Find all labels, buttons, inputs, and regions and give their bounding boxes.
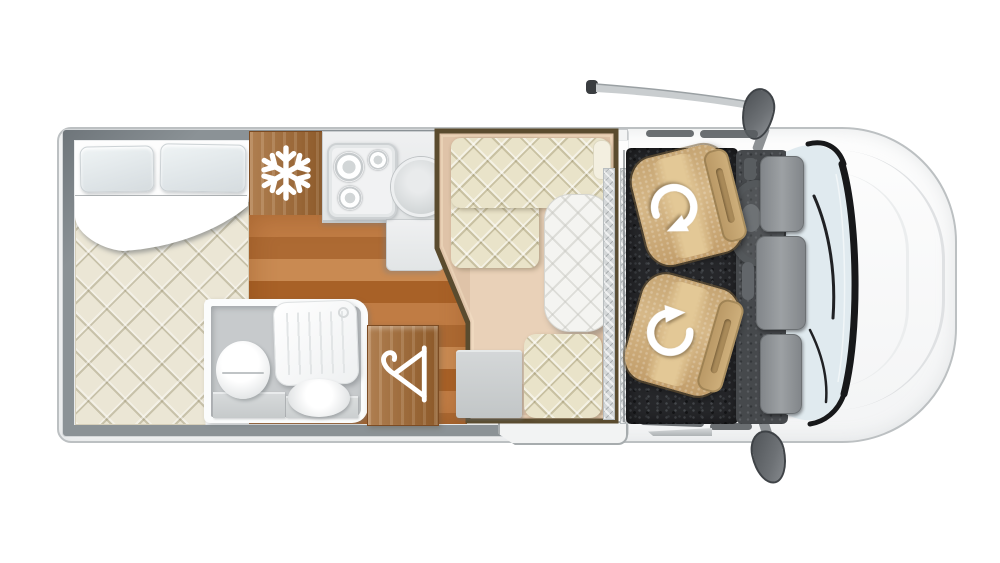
dinette-bench (456, 350, 522, 418)
swivel-arrow-icon (640, 303, 700, 363)
dinette-single-seat (524, 334, 602, 418)
snowflake-icon (257, 144, 315, 202)
washbasin (288, 379, 350, 417)
door-seam (710, 423, 752, 430)
roof-seam (646, 130, 694, 137)
pillow (80, 145, 155, 192)
hob-burner-medium (338, 186, 362, 210)
gear-lever (742, 262, 754, 300)
step-tread-inner (603, 168, 615, 420)
pillow (160, 143, 247, 192)
shower-drain (338, 307, 349, 318)
dinette-table (544, 194, 612, 332)
dash-vent (744, 158, 756, 180)
console-lower (760, 334, 802, 414)
console-engine (756, 236, 806, 330)
mirror-glass (747, 427, 791, 487)
console-upper (760, 156, 804, 232)
backrest-slot (715, 167, 736, 224)
hanger-icon (374, 338, 432, 410)
toilet (216, 341, 270, 399)
bed-sheet-fold (73, 194, 251, 260)
shower-ridges (286, 311, 346, 375)
cab-bulkhead-line (623, 150, 625, 422)
roof-seam (700, 130, 758, 138)
motorhome-floorplan (0, 0, 1000, 563)
hob-burner-large (334, 152, 364, 182)
shower-tray (273, 300, 360, 387)
mirror-top (740, 88, 784, 152)
toilet-seam (222, 372, 264, 374)
hob-burner-small (368, 150, 388, 170)
